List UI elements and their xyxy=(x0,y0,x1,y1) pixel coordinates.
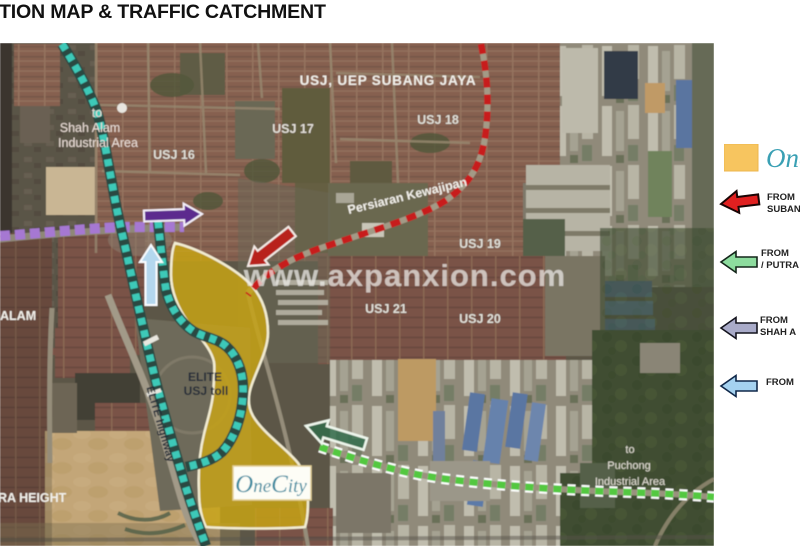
svg-text:ALAM: ALAM xyxy=(0,309,36,323)
svg-text:USJ 19: USJ 19 xyxy=(459,237,501,251)
svg-text:Industrial Area: Industrial Area xyxy=(58,136,138,150)
svg-text:USJ 21: USJ 21 xyxy=(365,302,407,316)
svg-text:to: to xyxy=(625,444,634,456)
svg-text:OneCity: OneCity xyxy=(235,471,307,498)
svg-text:Puchong: Puchong xyxy=(607,460,650,472)
svg-text:RA HEIGHT: RA HEIGHT xyxy=(0,491,67,505)
svg-text:Industrial Area: Industrial Area xyxy=(595,476,666,488)
svg-text:www.axpanxion.com: www.axpanxion.com xyxy=(243,258,566,293)
svg-text:USJ 20: USJ 20 xyxy=(459,312,501,326)
svg-text:USJ, UEP SUBANG JAYA: USJ, UEP SUBANG JAYA xyxy=(300,73,477,88)
svg-text:ELITE: ELITE xyxy=(188,370,222,384)
svg-text:to: to xyxy=(92,106,102,120)
svg-text:USJ 16: USJ 16 xyxy=(153,148,195,162)
svg-text:USJ toll: USJ toll xyxy=(184,384,229,398)
svg-text:USJ 18: USJ 18 xyxy=(417,113,459,127)
svg-text:USJ 17: USJ 17 xyxy=(272,122,314,136)
svg-text:Shah Alam: Shah Alam xyxy=(60,121,120,135)
